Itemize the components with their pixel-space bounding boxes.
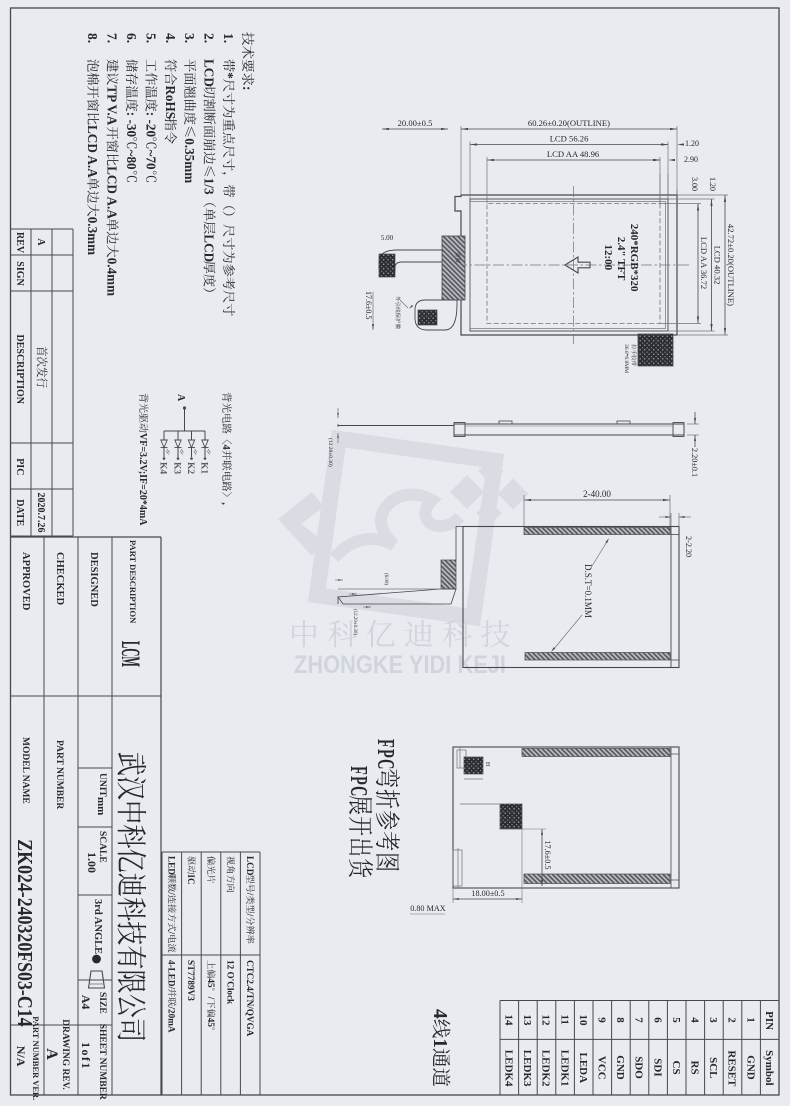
svg-text:A4: A4 (79, 995, 93, 1010)
svg-text:18.00±0.5: 18.00±0.5 (471, 889, 504, 898)
svg-text:SDO: SDO (633, 1056, 645, 1079)
svg-text:45: 45 (206, 978, 216, 988)
svg-text:0.3mm: 0.3mm (85, 217, 100, 255)
svg-text:LCD: LCD (245, 856, 255, 876)
svg-text:/: / (206, 996, 216, 1000)
svg-text:7: 7 (633, 1017, 645, 1023)
svg-text:RoHS: RoHS (163, 85, 178, 119)
svg-text:LEDK3: LEDK3 (521, 1050, 533, 1087)
svg-text:14: 14 (503, 1015, 515, 1027)
svg-text:~70: ~70 (143, 150, 158, 170)
svg-text:1.20: 1.20 (708, 177, 717, 191)
svg-text:1.: 1. (221, 33, 236, 43)
svg-text:2.20±0.1: 2.20±0.1 (690, 448, 699, 477)
svg-text:12:00: 12:00 (602, 245, 614, 271)
svg-text:LEDA: LEDA (577, 1053, 589, 1084)
svg-text:/: / (167, 891, 177, 895)
svg-text:45: 45 (206, 1018, 216, 1028)
svg-text:7.: 7. (105, 33, 120, 43)
svg-text:PART NUMBER VER.: PART NUMBER VER. (31, 1016, 41, 1100)
svg-text:4-LED/: 4-LED/ (167, 960, 177, 990)
svg-text:2.: 2. (202, 33, 217, 43)
svg-text:DRAWING REV.: DRAWING REV. (60, 1019, 70, 1090)
svg-text:RS: RS (689, 1061, 701, 1075)
svg-text:8.: 8. (85, 33, 100, 43)
svg-text:LCD AA 48.96: LCD AA 48.96 (547, 149, 600, 159)
svg-text:D.S.T=0.1MM: D.S.T=0.1MM (583, 564, 593, 618)
svg-text:1/3: 1/3 (202, 178, 217, 195)
svg-text:6.: 6. (124, 33, 139, 43)
svg-text:3rd ANGLE: 3rd ANGLE (92, 899, 103, 954)
svg-text:1.00: 1.00 (85, 852, 99, 873)
svg-text:3: 3 (707, 1017, 719, 1023)
svg-text:LEDK1: LEDK1 (558, 1050, 570, 1087)
svg-text:17.6±0.5: 17.6±0.5 (543, 840, 552, 869)
svg-text:A: A (175, 394, 186, 402)
svg-text:2.4" TFT: 2.4" TFT (615, 237, 627, 281)
svg-text:6: 6 (651, 1017, 663, 1023)
svg-text:/20mA: /20mA (167, 1006, 177, 1033)
svg-text:240*RGB*320: 240*RGB*320 (628, 224, 640, 292)
svg-text:LCD 40.32: LCD 40.32 (713, 246, 723, 285)
svg-text:(6.00): (6.00) (383, 573, 388, 585)
svg-text:PART DESCRIPTION: PART DESCRIPTION (128, 540, 138, 624)
svg-text:5: 5 (670, 1017, 682, 1023)
svg-text:SIZE: SIZE (97, 992, 107, 1014)
svg-text:K3: K3 (172, 462, 182, 474)
svg-text:SHEET NUMBER: SHEET NUMBER (97, 1024, 107, 1100)
svg-text:12: 12 (540, 1015, 552, 1027)
svg-text:K1: K1 (199, 462, 209, 474)
svg-text:LCD: LCD (202, 59, 217, 87)
svg-text:17.6±0.5: 17.6±0.5 (364, 291, 373, 319)
svg-text:MODEL NAME: MODEL NAME (20, 737, 30, 804)
svg-text:VF=3.2V;IF=20*4mA: VF=3.2V;IF=20*4mA (137, 433, 148, 526)
svg-text:ZK024-240320FS03-C14: ZK024-240320FS03-C14 (13, 839, 36, 1026)
svg-text:/: / (167, 931, 177, 935)
svg-text:LCD AA 36.72: LCD AA 36.72 (699, 237, 709, 289)
svg-text:,: , (220, 502, 231, 505)
svg-text:RESET: RESET (726, 1050, 738, 1087)
svg-text::: : (240, 86, 255, 91)
svg-text:SIGN: SIGN (14, 261, 25, 286)
svg-text:K4: K4 (158, 462, 168, 474)
svg-text:3.00: 3.00 (690, 177, 699, 191)
svg-text:2020.7.26: 2020.7.26 (35, 493, 46, 533)
svg-text:DESIGNED: DESIGNED (88, 552, 99, 607)
svg-text:0.4mm: 0.4mm (105, 258, 120, 296)
svg-text:SDI: SDI (651, 1058, 663, 1076)
svg-text:PIC: PIC (14, 458, 25, 475)
svg-text:20.00±0.5: 20.00±0.5 (398, 118, 433, 128)
svg-text:LED: LED (167, 856, 177, 875)
svg-text:PIN: PIN (763, 1011, 775, 1030)
svg-text:GND: GND (614, 1055, 626, 1080)
svg-text:(12.20±0.30): (12.20±0.30) (352, 609, 357, 635)
svg-text:1of1: 1of1 (79, 1042, 93, 1070)
svg-text:2: 2 (726, 1017, 738, 1023)
svg-text:LCD 56.26: LCD 56.26 (550, 134, 589, 144)
svg-text:~80: ~80 (124, 150, 139, 170)
svg-text:ST7789V3: ST7789V3 (186, 960, 196, 1001)
svg-text:2.90: 2.90 (684, 155, 698, 164)
svg-text:LEDK2: LEDK2 (540, 1050, 552, 1087)
svg-text:4: 4 (220, 445, 231, 451)
svg-text:2-40.00: 2-40.00 (583, 489, 611, 499)
svg-text:42.72±0.20(OUTLINE): 42.72±0.20(OUTLINE) (726, 224, 736, 306)
svg-text:LCD A.A: LCD A.A (85, 125, 100, 178)
svg-text:11: 11 (558, 1015, 570, 1025)
svg-text:0.80 MAX: 0.80 MAX (410, 904, 446, 913)
svg-text:(12.20±0.30): (12.20±0.30) (327, 438, 334, 467)
svg-text:1.20: 1.20 (685, 139, 699, 148)
svg-text:VCC: VCC (596, 1056, 608, 1080)
svg-text:UNIT: UNIT (97, 773, 107, 797)
svg-text:N/A: N/A (14, 1046, 28, 1067)
svg-text:DATE: DATE (14, 499, 25, 526)
svg-text:LEDK4: LEDK4 (503, 1050, 515, 1087)
svg-text:FPC: FPC (345, 766, 372, 798)
svg-text:1: 1 (744, 1017, 756, 1023)
svg-text:K2: K2 (185, 462, 195, 474)
svg-text:SCL: SCL (707, 1057, 719, 1078)
svg-text:10: 10 (577, 1015, 589, 1027)
svg-text:: -20: : -20 (143, 112, 158, 138)
svg-text:IC: IC (186, 874, 196, 884)
svg-text:3.: 3. (182, 33, 197, 43)
svg-text:1: 1 (429, 1038, 450, 1048)
svg-text:: -30: : -30 (124, 112, 139, 138)
svg-text:H: H (484, 762, 490, 767)
svg-text:A: A (43, 1048, 60, 1060)
svg-text:0.35mm: 0.35mm (182, 138, 197, 183)
svg-text:mm: mm (95, 797, 107, 815)
svg-text:PART NUMBER: PART NUMBER (54, 740, 64, 809)
svg-text:4: 4 (689, 1017, 701, 1023)
svg-text:GND: GND (744, 1055, 756, 1080)
svg-text:8: 8 (614, 1017, 626, 1023)
svg-text:FPC: FPC (372, 739, 399, 771)
svg-text:REV: REV (14, 232, 25, 254)
svg-text:CTC2.4/TN/QVGA: CTC2.4/TN/QVGA (245, 960, 255, 1037)
svg-text:13: 13 (521, 1015, 533, 1027)
svg-text:60.26±0.20(OUTLINE): 60.26±0.20(OUTLINE) (528, 118, 610, 128)
svg-text:/: / (245, 892, 255, 896)
svg-text:4: 4 (429, 1009, 450, 1019)
svg-text:36.0*6.0MM: 36.0*6.0MM (623, 344, 629, 373)
svg-text:CHECKED: CHECKED (54, 552, 65, 606)
svg-text:5.00: 5.00 (381, 234, 394, 242)
svg-text:*: * (221, 72, 236, 79)
svg-text:CS: CS (670, 1061, 682, 1075)
svg-text:4.: 4. (163, 33, 178, 43)
svg-text:A: A (35, 238, 46, 246)
svg-text:TP V.A: TP V.A (105, 85, 120, 125)
svg-text:2-2.20: 2-2.20 (684, 536, 693, 557)
svg-text:12 O'Clock: 12 O'Clock (225, 960, 235, 1005)
svg-text:5.: 5. (143, 33, 158, 43)
svg-text:LCM: LCM (115, 641, 144, 667)
svg-text:/: / (245, 913, 255, 917)
svg-text:LCD: LCD (202, 234, 217, 262)
svg-text:DESCRIPTION: DESCRIPTION (14, 335, 25, 405)
svg-text:APPROVED: APPROVED (20, 552, 31, 611)
svg-text:9: 9 (596, 1017, 608, 1023)
svg-text:Symbol: Symbol (763, 1050, 775, 1085)
svg-text:LCD A.A: LCD A.A (105, 166, 120, 219)
